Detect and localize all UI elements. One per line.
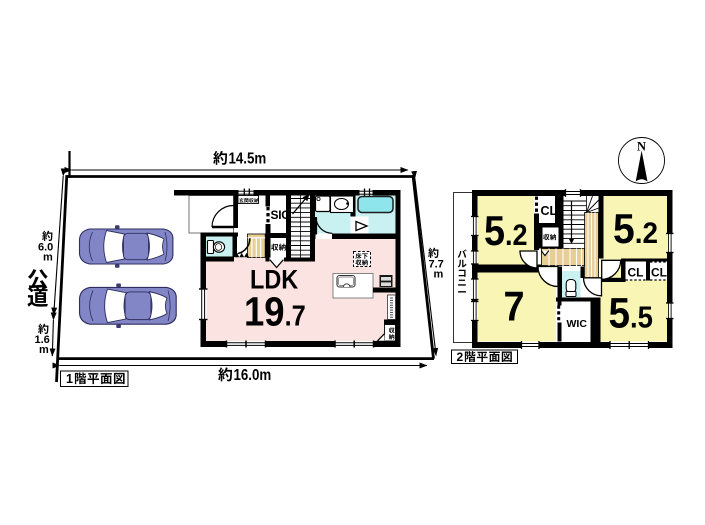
svg-text:CL: CL bbox=[651, 266, 667, 280]
svg-text:7: 7 bbox=[504, 284, 525, 330]
svg-text:SIC: SIC bbox=[271, 208, 291, 222]
svg-text:2: 2 bbox=[457, 350, 464, 364]
svg-text:m: m bbox=[434, 269, 444, 281]
svg-text:m: m bbox=[39, 344, 49, 356]
svg-text:1: 1 bbox=[66, 372, 73, 386]
svg-text:WIC: WIC bbox=[567, 318, 588, 330]
svg-text:14.5m: 14.5m bbox=[229, 151, 267, 168]
svg-text:CL: CL bbox=[628, 266, 644, 280]
svg-text:m: m bbox=[43, 252, 53, 264]
svg-text:CL: CL bbox=[541, 204, 558, 218]
svg-text:16.0m: 16.0m bbox=[234, 367, 272, 384]
